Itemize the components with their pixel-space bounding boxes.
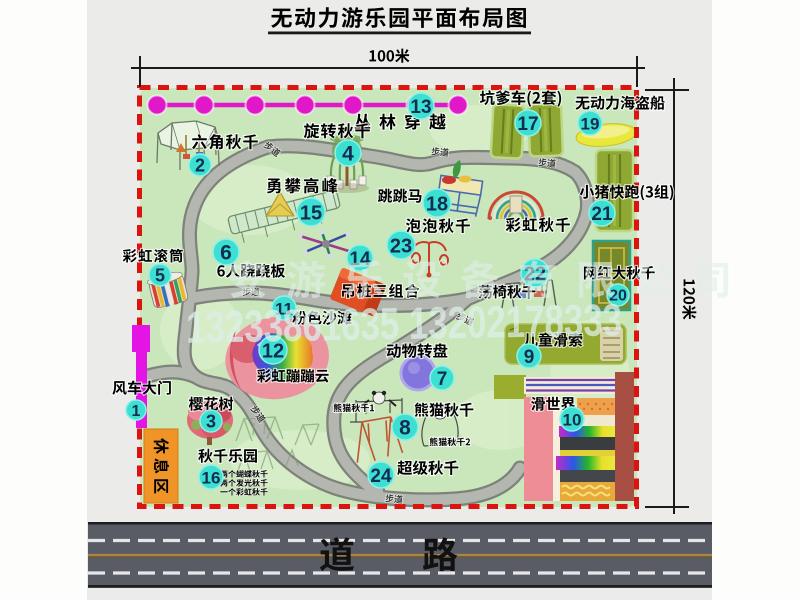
svg-text:6: 6: [220, 241, 232, 264]
svg-text:23: 23: [390, 235, 412, 257]
svg-text:9: 9: [524, 347, 535, 368]
svg-text:15: 15: [300, 202, 322, 224]
svg-text:8: 8: [399, 416, 411, 439]
svg-text:5: 5: [155, 265, 165, 285]
svg-text:17: 17: [517, 114, 538, 135]
svg-text:16: 16: [202, 468, 221, 487]
svg-text:13: 13: [410, 97, 431, 118]
svg-text:1: 1: [132, 403, 141, 420]
svg-text:13233861635 13202178333: 13233861635 13202178333: [186, 294, 623, 353]
svg-text:18: 18: [426, 193, 448, 215]
svg-text:3: 3: [206, 411, 216, 431]
svg-text:24: 24: [370, 466, 392, 487]
svg-text:10: 10: [563, 410, 582, 429]
svg-text:21: 21: [591, 204, 613, 225]
svg-text:7: 7: [437, 369, 448, 390]
svg-text:19: 19: [581, 114, 600, 133]
svg-text:2: 2: [195, 155, 205, 175]
svg-text:4: 4: [342, 142, 354, 165]
